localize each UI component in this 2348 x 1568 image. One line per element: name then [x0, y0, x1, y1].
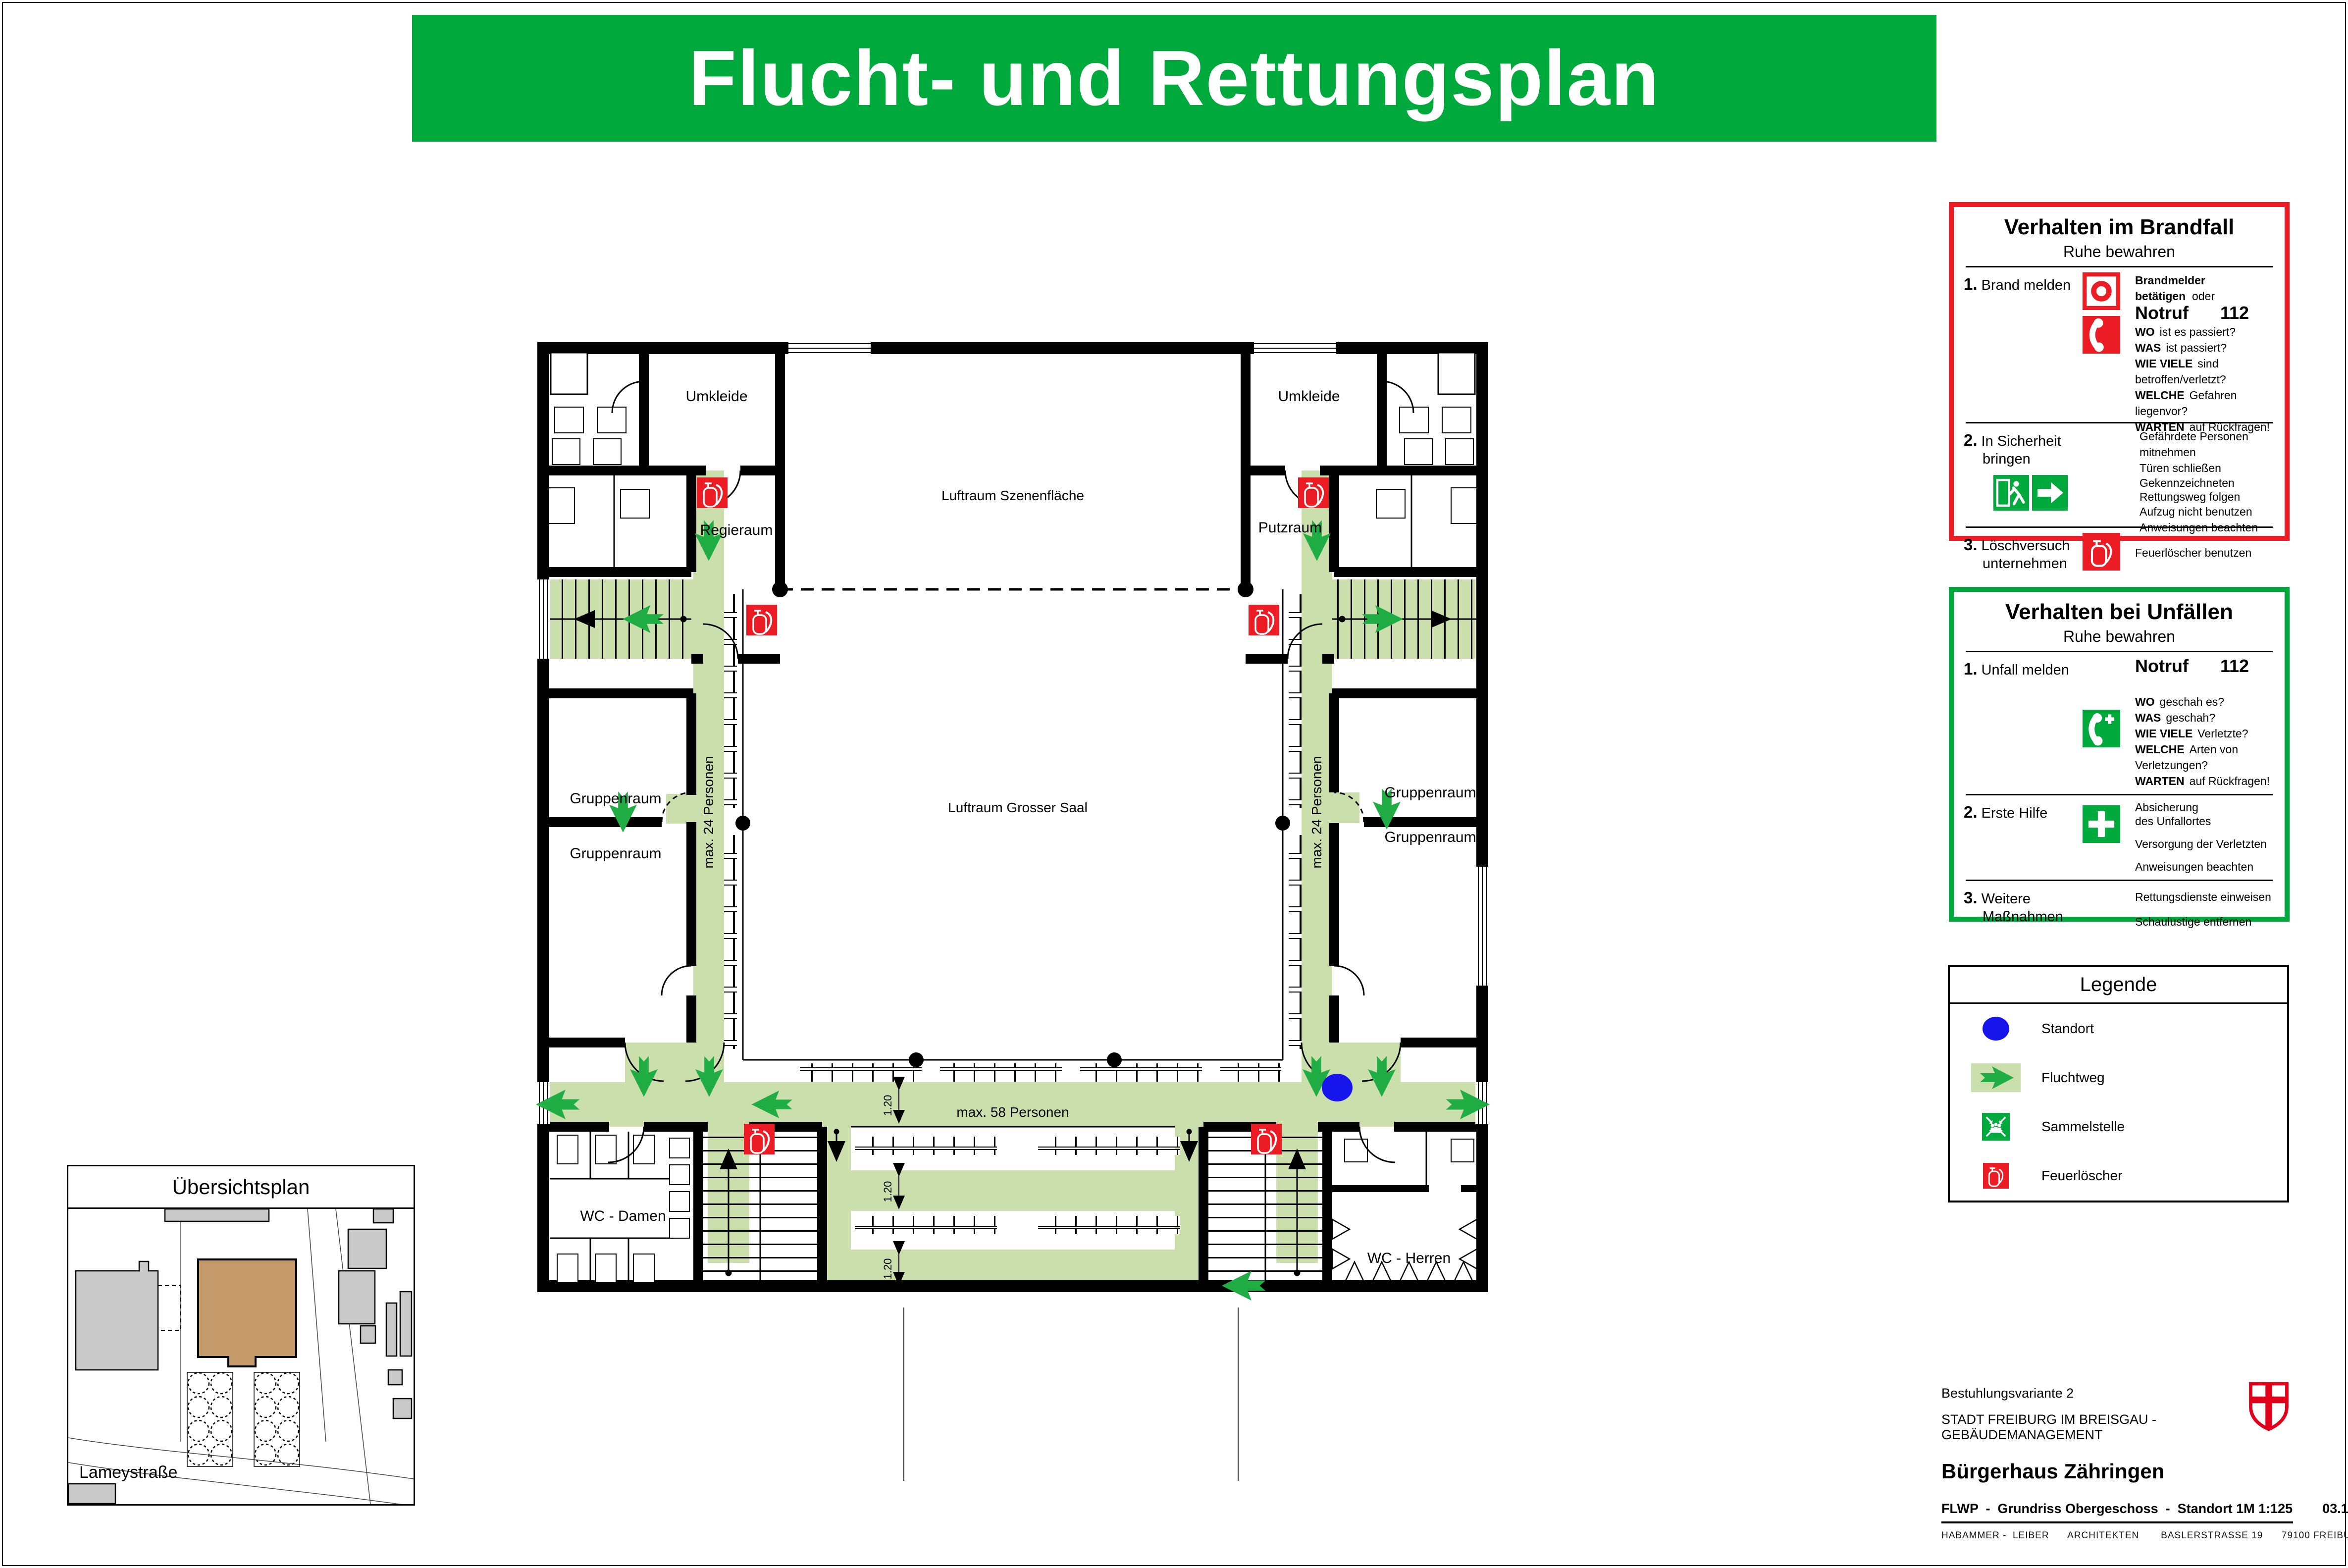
instruction-line: des Unfallortes [2135, 814, 2275, 828]
notruf-label: Notruf [2135, 303, 2189, 323]
escape-plan-sheet: Flucht- und Rettungsplan [0, 0, 2348, 1568]
accident-notice-subtitle: Ruhe bewahren [1964, 627, 2275, 646]
q-text: geschah es? [2160, 695, 2224, 708]
site-map: Lameystraße [68, 1209, 414, 1504]
line-tail: oder [2192, 290, 2215, 303]
instruction-line: Absicherung [2135, 800, 2275, 814]
step-label: Erste Hilfe [1982, 805, 2048, 821]
step-label: Unfall melden [1982, 662, 2069, 678]
emergency-phone-icon [2083, 710, 2120, 747]
label-gruppenraum-l2: Gruppenraum [570, 845, 661, 862]
instruction-line: Schaulustige entfernen [2135, 914, 2275, 930]
step-label: Weitere [1982, 891, 2031, 907]
first-aid-icon [2083, 805, 2120, 843]
step-label: Löschversuch [1982, 538, 2070, 554]
q-key: WO [2135, 694, 2155, 710]
standort-marker [1322, 1074, 1353, 1101]
phone-icon [2083, 316, 2120, 354]
label-max24-left: max. 24 Personen [701, 756, 716, 868]
accident-step-2: 2. Erste Hilfe Absicherung des Unfallort… [1964, 795, 2275, 880]
label-max24-right: max. 24 Personen [1309, 756, 1324, 868]
freiburg-coat-of-arms [2248, 1382, 2289, 1431]
project-title: Bürgerhaus Zähringen [1941, 1460, 2293, 1483]
step-label: Brand melden [1982, 277, 2071, 293]
emergency-exit-icon [1993, 475, 2029, 511]
accident-step-1: 1. Unfall melden Notruf112 WOgeschah es?… [1964, 652, 2275, 794]
scale-value: M 1:125 [2244, 1501, 2293, 1516]
q-key: WIE VIELE [2135, 726, 2192, 741]
q-text: ist es passiert? [2160, 325, 2236, 338]
legend-box: Legende Standort Fluchtweg [1948, 965, 2289, 1202]
label-dim1: 1.20 [882, 1095, 894, 1116]
architects-line: HABAMMER - LEIBER ARCHITEKTEN BASLERSTRA… [1941, 1530, 2293, 1541]
exit-arrow-icon [2032, 475, 2068, 511]
legend-title: Legende [1950, 967, 2287, 1004]
label-luftraum-saal: Luftraum Grosser Saal [948, 800, 1088, 815]
step-number: 3. [1964, 535, 1978, 554]
page-title: Flucht- und Rettungsplan [688, 34, 1660, 123]
step-number: 2. [1964, 431, 1978, 449]
fluchtweg-icon [1971, 1063, 2021, 1092]
label-umkleide-left: Umkleide [685, 388, 747, 405]
q-text: ist passiert? [2166, 341, 2227, 354]
site-building-main [198, 1259, 296, 1366]
legend-item-standort: Standort [1950, 1004, 2287, 1053]
instruction-line: Anweisungen beachten [2135, 859, 2275, 875]
q-text: auf Rückfragen! [2190, 775, 2270, 787]
feuerloescher-icon [1983, 1163, 2009, 1189]
step-number: 2. [1964, 803, 1978, 821]
step-label: bringen [1983, 451, 2031, 467]
label-umkleide-right: Umkleide [1278, 388, 1340, 405]
fire-alarm-icon [2083, 272, 2120, 310]
q-text: geschah? [2166, 711, 2215, 724]
accident-notice-box: Verhalten bei Unfällen Ruhe bewahren 1. … [1949, 587, 2290, 922]
instruction-line: Türen schließen [2139, 460, 2275, 476]
step-number: 1. [1964, 275, 1978, 293]
structure-dots [735, 581, 1290, 1067]
instruction-line: Gekennzeichneten [2139, 476, 2275, 490]
q-key: WARTEN [2135, 773, 2185, 789]
instruction-line: Rettungsdienste einweisen [2135, 889, 2275, 905]
sheet-title: FLWP - Grundriss Obergeschoss - Standort… [1941, 1501, 2244, 1516]
variant-line: Bestuhlungsvariante 2 [1941, 1386, 2293, 1401]
q-key: WO [2135, 324, 2155, 340]
q-key: WELCHE [2135, 741, 2185, 757]
label-dim2: 1.20 [882, 1181, 894, 1202]
fire-notice-subtitle: Ruhe bewahren [1964, 243, 2275, 261]
label-regieraum: Regieraum [700, 522, 773, 538]
section-lines [904, 1307, 1238, 1481]
legend-item-sammelstelle: Sammelstelle [1950, 1102, 2287, 1151]
label-wc-herren: WC - Herren [1367, 1250, 1451, 1266]
q-key: WELCHE [2135, 387, 2185, 403]
instruction-line: Aufzug nicht benutzen [2139, 504, 2275, 520]
label-gruppenraum-l1: Gruppenraum [570, 790, 661, 807]
step-label: unternehmen [1983, 556, 2067, 572]
instruction-line: Rettungsweg folgen [2139, 490, 2275, 504]
notruf-number: 112 [2220, 303, 2249, 323]
accident-step-3: 3. Weitere Maßnahmen Rettungsdienste ein… [1964, 881, 2275, 935]
instruction-line: Feuerlöscher benutzen [2135, 545, 2251, 561]
label-max58: max. 58 Personen [956, 1104, 1069, 1120]
instruction-line: Gefährdete Personen mitnehmen [2139, 428, 2275, 460]
q-key: WAS [2135, 710, 2161, 726]
label-dim3: 1.20 [882, 1258, 894, 1280]
sammelstelle-icon [1982, 1113, 2010, 1141]
street-label: Lameystraße [79, 1463, 177, 1482]
fire-step-3: 3. Löschversuch unternehmen Feuerlöscher… [1964, 528, 2275, 577]
label-gruppenraum-r2: Gruppenraum [1384, 829, 1476, 845]
legend-item-feuerloescher: Feuerlöscher [1950, 1151, 2287, 1201]
legend-label: Standort [2041, 1021, 2094, 1037]
legend-label: Fluchtweg [2041, 1070, 2105, 1086]
label-wc-damen: WC - Damen [580, 1208, 666, 1224]
owner-line: STADT FREIBURG IM BREISGAU - GEBÄUDEMANA… [1941, 1412, 2293, 1443]
step-label: Maßnahmen [1983, 909, 2063, 925]
notruf-number: 112 [2220, 656, 2249, 676]
accident-notice-title: Verhalten bei Unfällen [1964, 600, 2275, 625]
q-text: Verletzte? [2197, 727, 2248, 740]
instruction-line: Versorgung der Verletzten [2135, 836, 2275, 852]
label-putzraum: Putzraum [1258, 520, 1322, 536]
overview-box: Übersichtsplan [67, 1165, 415, 1506]
fire-extinguisher-icons [697, 477, 1329, 1154]
label-luftraum-szene: Luftraum Szenenfläche [941, 488, 1084, 503]
step-number: 3. [1964, 889, 1978, 907]
legend-label: Sammelstelle [2041, 1119, 2125, 1135]
q-key: WAS [2135, 340, 2161, 356]
fire-step-2: 2. In Sicherheit bringen [1964, 423, 2275, 526]
floor-plan: Umkleide Umkleide Regieraum Putzraum Gru… [536, 337, 1493, 1486]
fire-notice-title: Verhalten im Brandfall [1964, 215, 2275, 240]
legend-label: Feuerlöscher [2041, 1168, 2122, 1184]
step-label: In Sicherheit [1982, 433, 2061, 449]
extinguisher-icon [2083, 533, 2120, 571]
legend-item-fluchtweg: Fluchtweg [1950, 1053, 2287, 1102]
notruf-label: Notruf [2135, 656, 2189, 676]
step-number: 1. [1964, 660, 1978, 678]
standort-icon [1983, 1017, 2009, 1041]
fire-step-1: 1. Brand melden Brandmelder betätigen od… [1964, 267, 2275, 422]
header-banner: Flucht- und Rettungsplan [412, 15, 1936, 142]
q-key: WIE VIELE [2135, 356, 2192, 371]
label-gruppenraum-r1: Gruppenraum [1384, 784, 1476, 801]
date-value: 03.11.15 [2322, 1501, 2348, 1516]
fire-notice-box: Verhalten im Brandfall Ruhe bewahren 1. … [1949, 202, 2290, 541]
overview-title: Übersichtsplan [68, 1166, 414, 1209]
title-block: Bestuhlungsvariante 2 STADT FREIBURG IM … [1941, 1382, 2293, 1530]
window-marks [536, 341, 1489, 1124]
